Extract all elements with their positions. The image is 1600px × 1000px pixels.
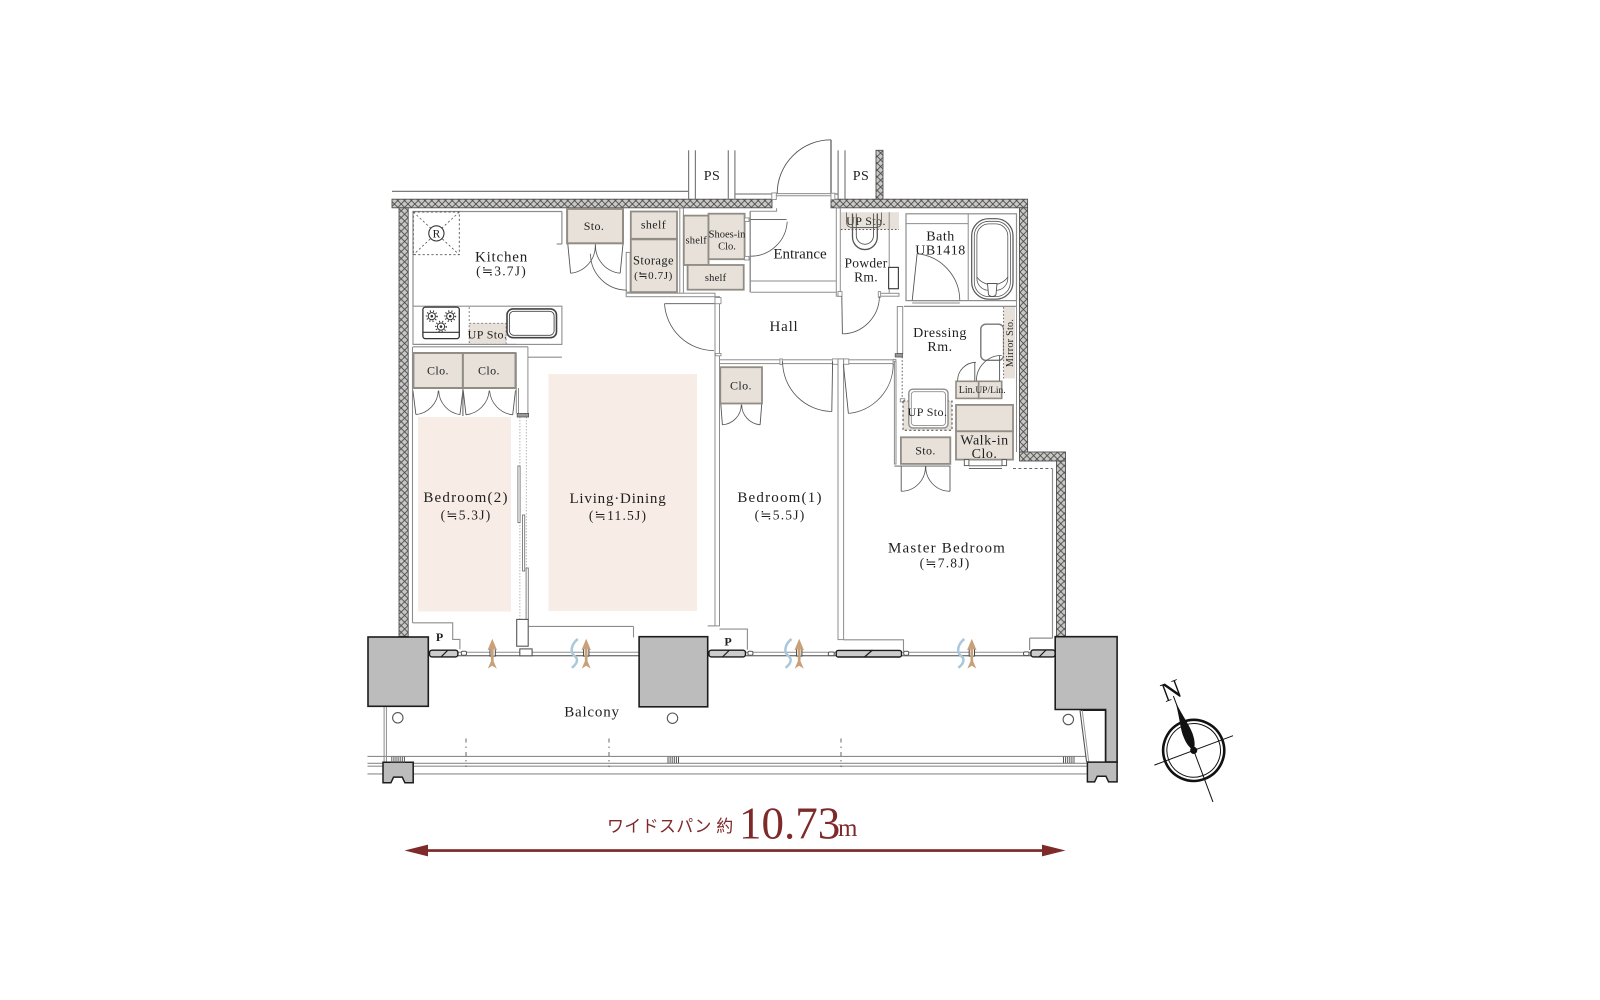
svg-text:Lin.: Lin.: [959, 385, 975, 396]
svg-text:Clo.: Clo.: [478, 364, 500, 378]
svg-text:UB1418: UB1418: [915, 244, 965, 259]
svg-text:Living·Dining: Living·Dining: [569, 491, 666, 507]
svg-text:Clo.: Clo.: [730, 379, 752, 393]
svg-text:Sto.: Sto.: [915, 444, 936, 458]
svg-text:ワイドスパン 約: ワイドスパン 約: [607, 817, 734, 836]
svg-text:Master Bedroom: Master Bedroom: [888, 541, 1006, 557]
svg-text:P: P: [724, 634, 731, 648]
svg-text:Bedroom(2): Bedroom(2): [423, 490, 508, 506]
svg-text:Sto.: Sto.: [584, 219, 605, 233]
svg-text:PS: PS: [704, 169, 721, 184]
svg-text:Hall: Hall: [769, 319, 798, 335]
svg-text:Bath: Bath: [926, 230, 954, 245]
svg-text:Clo.: Clo.: [427, 364, 449, 378]
svg-text:Rm.: Rm.: [854, 270, 878, 285]
svg-text:m: m: [838, 815, 858, 842]
svg-text:UP/Lin.: UP/Lin.: [975, 386, 1005, 396]
svg-text:shelf: shelf: [641, 218, 666, 232]
svg-text:Shoes-in: Shoes-in: [709, 230, 747, 241]
svg-text:UP Sto.: UP Sto.: [908, 405, 948, 419]
svg-text:UP Sto.: UP Sto.: [468, 328, 508, 342]
svg-text:P: P: [436, 630, 443, 644]
svg-text:Clo.: Clo.: [972, 447, 998, 462]
svg-text:10.73: 10.73: [739, 799, 840, 849]
svg-text:Balcony: Balcony: [564, 705, 620, 721]
svg-text:Powder: Powder: [844, 256, 887, 271]
svg-text:Bedroom(1): Bedroom(1): [737, 490, 822, 506]
svg-text:(≒5.3J): (≒5.3J): [441, 508, 492, 523]
svg-text:R: R: [433, 229, 441, 241]
svg-text:(≒7.8J): (≒7.8J): [920, 556, 971, 571]
svg-text:Clo.: Clo.: [718, 242, 736, 253]
svg-text:(≒0.7J): (≒0.7J): [634, 270, 673, 282]
svg-text:(≒5.5J): (≒5.5J): [755, 508, 806, 523]
svg-text:(≒11.5J): (≒11.5J): [589, 508, 647, 523]
svg-text:shelf: shelf: [705, 273, 727, 284]
svg-text:Dressing: Dressing: [913, 326, 967, 341]
svg-text:Rm.: Rm.: [927, 340, 952, 355]
svg-text:Entrance: Entrance: [773, 247, 827, 263]
svg-text:shelf: shelf: [685, 236, 707, 247]
svg-text:Storage: Storage: [633, 254, 674, 268]
svg-text:(≒3.7J): (≒3.7J): [476, 264, 527, 279]
svg-text:Mirror Sto.: Mirror Sto.: [1005, 319, 1016, 367]
svg-text:PS: PS: [853, 169, 870, 184]
